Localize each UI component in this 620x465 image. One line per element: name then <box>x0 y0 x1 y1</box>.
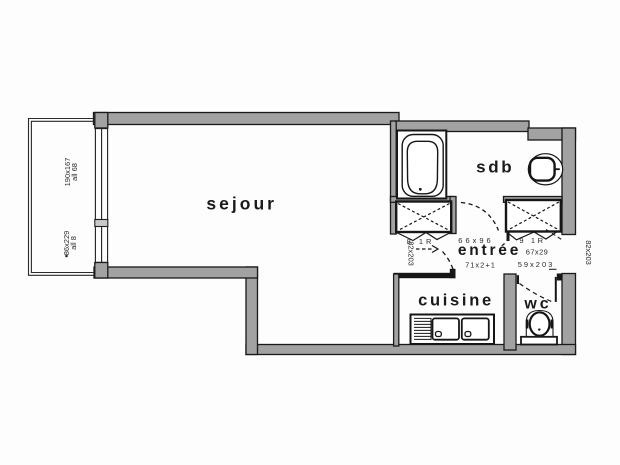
svg-text:wc: wc <box>523 296 551 313</box>
svg-text:9 1R: 9 1R <box>519 236 545 245</box>
svg-text:sejour: sejour <box>206 194 277 214</box>
svg-text:entrée: entrée <box>458 242 521 259</box>
svg-text:82x203: 82x203 <box>584 240 593 265</box>
svg-text:67x29: 67x29 <box>526 248 548 257</box>
svg-text:cuisine: cuisine <box>418 292 494 310</box>
svg-text:8 1R: 8 1R <box>407 237 435 246</box>
svg-text:59x203: 59x203 <box>518 260 555 269</box>
svg-text:sdb: sdb <box>476 158 514 177</box>
svg-text:71x2+1: 71x2+1 <box>465 261 496 270</box>
